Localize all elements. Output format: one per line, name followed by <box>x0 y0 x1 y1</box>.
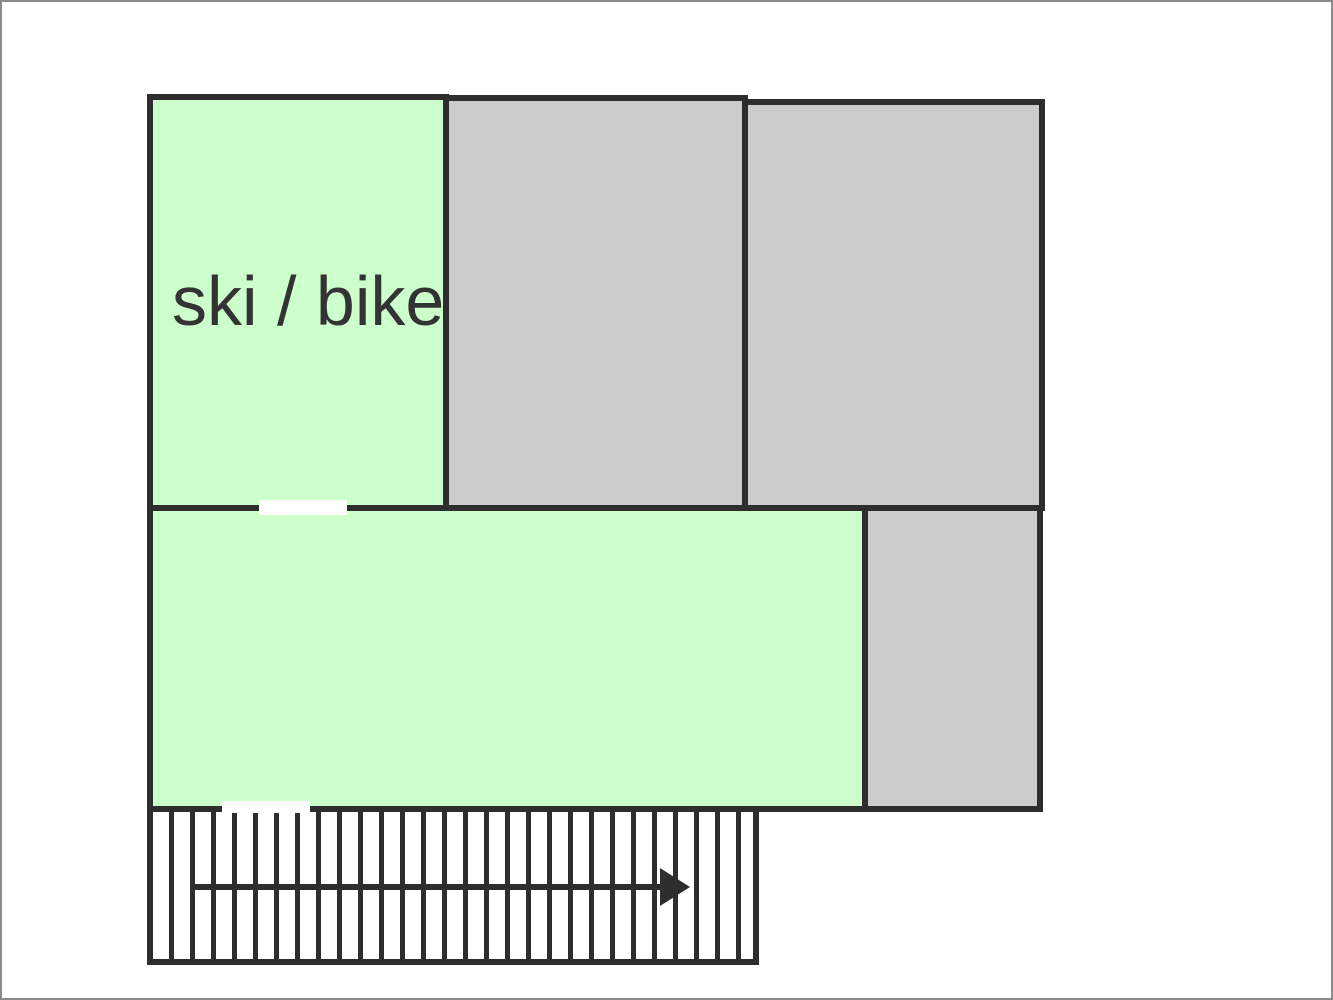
ski-bike-room-label: ski / bike <box>172 266 444 336</box>
main-lower-room <box>147 505 868 812</box>
stairs-direction-arrow <box>190 884 664 890</box>
right-arrow-icon <box>660 868 690 906</box>
top-middle-room <box>443 95 748 511</box>
side-lower-room <box>862 505 1043 812</box>
door-opening-lower <box>222 801 310 813</box>
floorplan-canvas: ski / bike <box>0 0 1333 1000</box>
door-opening-upper <box>259 500 347 515</box>
top-right-room <box>742 99 1045 511</box>
